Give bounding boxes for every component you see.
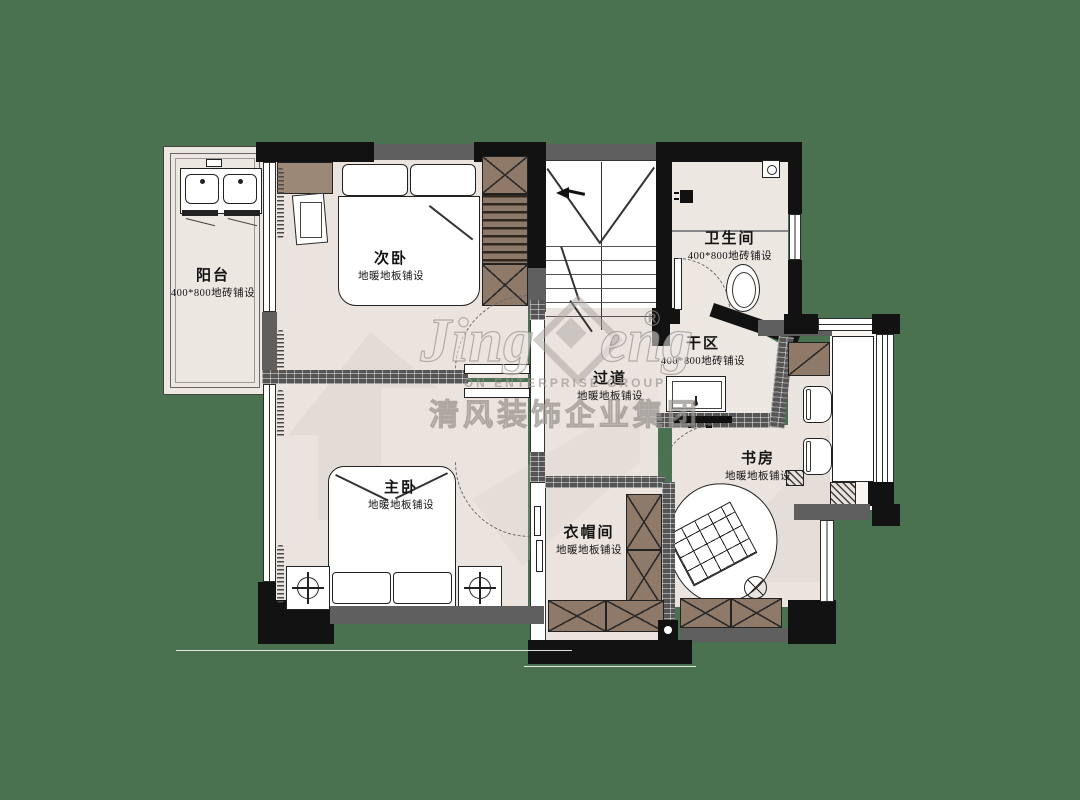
wardrobe-section bbox=[482, 156, 528, 194]
corner-column-dot bbox=[664, 626, 672, 634]
bay-south-wall bbox=[794, 504, 870, 520]
top-wall-window-lintel bbox=[546, 144, 656, 160]
room-finish: 400*800地砖铺设 bbox=[171, 285, 255, 300]
curtain bbox=[277, 390, 284, 438]
bay-pier bbox=[868, 482, 894, 506]
curtain bbox=[277, 168, 284, 238]
stair-tread bbox=[546, 274, 656, 275]
cloakroom-wardrobe bbox=[626, 550, 662, 606]
room-name: 干区 bbox=[661, 332, 745, 353]
room-name: 次卧 bbox=[358, 247, 424, 268]
exterior-keyline bbox=[524, 666, 696, 667]
stair-tread bbox=[546, 316, 656, 317]
tv bbox=[674, 416, 732, 423]
room-label-study: 书房 地暖地板铺设 bbox=[725, 447, 791, 483]
room-finish: 地暖地板铺设 bbox=[358, 268, 424, 283]
room-name: 衣帽间 bbox=[556, 521, 622, 542]
secondary-bedroom-window bbox=[263, 162, 276, 312]
room-name: 主卧 bbox=[368, 476, 434, 497]
room-name: 卫生间 bbox=[688, 227, 772, 248]
stair-tread bbox=[546, 288, 656, 289]
room-name: 过道 bbox=[577, 367, 643, 388]
room-finish: 地暖地板铺设 bbox=[556, 542, 622, 557]
cabinet-front bbox=[182, 210, 218, 216]
master-bed-pillow bbox=[393, 572, 452, 604]
room-finish: 地暖地板铺设 bbox=[368, 497, 434, 512]
stair-tread bbox=[546, 302, 656, 303]
shower-arm bbox=[674, 192, 679, 194]
master-bed-pillow bbox=[332, 572, 391, 604]
room-finish: 地暖地板铺设 bbox=[725, 468, 791, 483]
cloakroom-wardrobe bbox=[626, 494, 662, 550]
exterior-keyline bbox=[176, 650, 572, 651]
room-finish: 400*800地砖铺设 bbox=[688, 248, 772, 263]
room-label-cloakroom: 衣帽间 地暖地板铺设 bbox=[556, 521, 622, 557]
bathroom-right-wall bbox=[788, 142, 802, 214]
cloakroom-south-wall bbox=[528, 640, 692, 664]
floor-drain-dot bbox=[767, 165, 777, 175]
toilet-bowl bbox=[732, 272, 756, 308]
faucet-valve bbox=[206, 159, 222, 167]
tv-stand bbox=[688, 425, 694, 428]
cloakroom-north-wall bbox=[545, 476, 665, 488]
cloakroom-wardrobe-south bbox=[548, 600, 606, 632]
master-bedroom-door bbox=[464, 388, 530, 398]
curtain bbox=[277, 330, 284, 370]
master-bedroom-window bbox=[263, 384, 276, 582]
wardrobe-shelves bbox=[482, 194, 528, 264]
cloakroom-sliding-door bbox=[534, 506, 541, 536]
bay-corner bbox=[784, 314, 818, 334]
study-window bbox=[820, 520, 834, 602]
bathroom-window bbox=[789, 214, 801, 260]
study-corner-wall bbox=[788, 600, 836, 644]
bay-window-top-glazing bbox=[818, 318, 876, 331]
faucet-dot bbox=[200, 179, 205, 184]
secondary-nightstand-top bbox=[300, 202, 322, 238]
room-label-hallway: 过道 地暖地板铺设 bbox=[577, 367, 643, 403]
top-wall-segment bbox=[256, 142, 374, 162]
study-cabinet bbox=[788, 342, 830, 376]
study-south-wall bbox=[680, 628, 792, 642]
cloakroom-sliding-door bbox=[536, 540, 543, 572]
room-label-master-bedroom: 主卧 地暖地板铺设 bbox=[368, 476, 434, 512]
desk-chair bbox=[803, 386, 832, 423]
shower-arm bbox=[674, 198, 679, 200]
study-desk bbox=[832, 336, 874, 482]
ceiling-lamp-symbol bbox=[297, 577, 319, 599]
faucet-dot bbox=[238, 179, 243, 184]
shower-head bbox=[680, 190, 693, 203]
hallway-west-wall-brick bbox=[530, 452, 545, 482]
room-finish: 400*800地砖铺设 bbox=[661, 353, 745, 368]
bedroom-divider-wall bbox=[262, 370, 468, 384]
stair-left-wall bbox=[528, 142, 546, 268]
study-wardrobe bbox=[731, 598, 782, 628]
secondary-bed-pillow bbox=[410, 164, 476, 196]
room-finish: 地暖地板铺设 bbox=[577, 388, 643, 403]
vanity-faucet-dot bbox=[693, 401, 698, 406]
room-label-dry-area: 干区 400*800地砖铺设 bbox=[661, 332, 745, 368]
cloakroom-wardrobe-south bbox=[606, 600, 664, 632]
room-label-balcony: 阳台 400*800地砖铺设 bbox=[171, 264, 255, 300]
curtain bbox=[277, 545, 284, 603]
desk-chair bbox=[803, 438, 832, 475]
headboard-cabinet bbox=[277, 162, 333, 194]
floor-lamp bbox=[744, 576, 767, 599]
room-label-bathroom: 卫生间 400*800地砖铺设 bbox=[688, 227, 772, 263]
floor-plan: 阳台 400*800地砖铺设 次卧 地暖地板铺设 卫生间 400*800地砖铺设… bbox=[0, 0, 1080, 800]
master-south-wall bbox=[330, 606, 544, 624]
ceiling-lamp-symbol bbox=[469, 577, 491, 599]
secondary-bed-pillow bbox=[342, 164, 408, 196]
stair-right-wall bbox=[656, 142, 672, 312]
hallway-west-wall-brick bbox=[530, 300, 545, 320]
room-name: 阳台 bbox=[171, 264, 255, 285]
room-label-secondary-bedroom: 次卧 地暖地板铺设 bbox=[358, 247, 424, 283]
stair-tread bbox=[546, 260, 656, 261]
cabinet-front bbox=[224, 210, 260, 216]
top-wall-window-lintel bbox=[374, 144, 474, 160]
study-wardrobe bbox=[680, 598, 731, 628]
bay-corner bbox=[872, 314, 900, 334]
room-name: 书房 bbox=[725, 447, 791, 468]
top-wall-segment bbox=[656, 142, 802, 162]
bay-corner bbox=[872, 504, 900, 526]
